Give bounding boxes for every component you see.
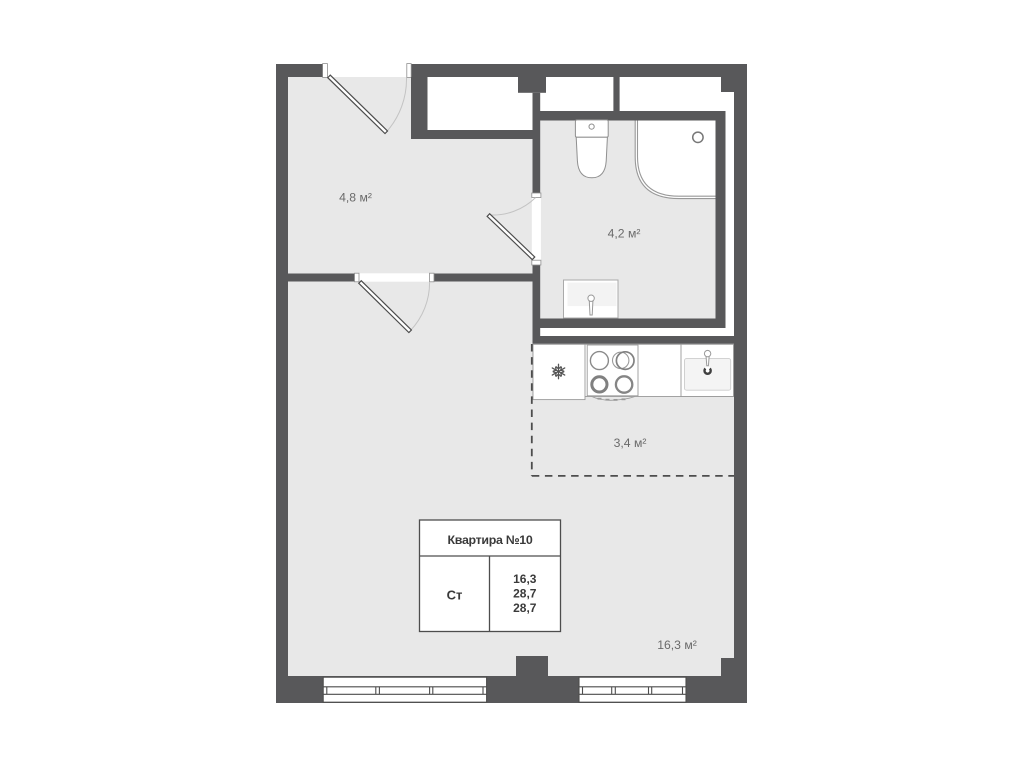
svg-text:16,3: 16,3	[513, 572, 537, 586]
svg-text:3,4 м²: 3,4 м²	[614, 436, 647, 450]
svg-text:28,7: 28,7	[513, 587, 537, 601]
svg-text:16,3 м²: 16,3 м²	[657, 638, 697, 652]
svg-text:4,8 м²: 4,8 м²	[339, 191, 372, 205]
svg-text:Ст: Ст	[447, 588, 463, 603]
svg-text:4,2 м²: 4,2 м²	[608, 227, 641, 241]
svg-text:Квартира №10: Квартира №10	[448, 533, 533, 547]
svg-text:28,7: 28,7	[513, 601, 537, 615]
